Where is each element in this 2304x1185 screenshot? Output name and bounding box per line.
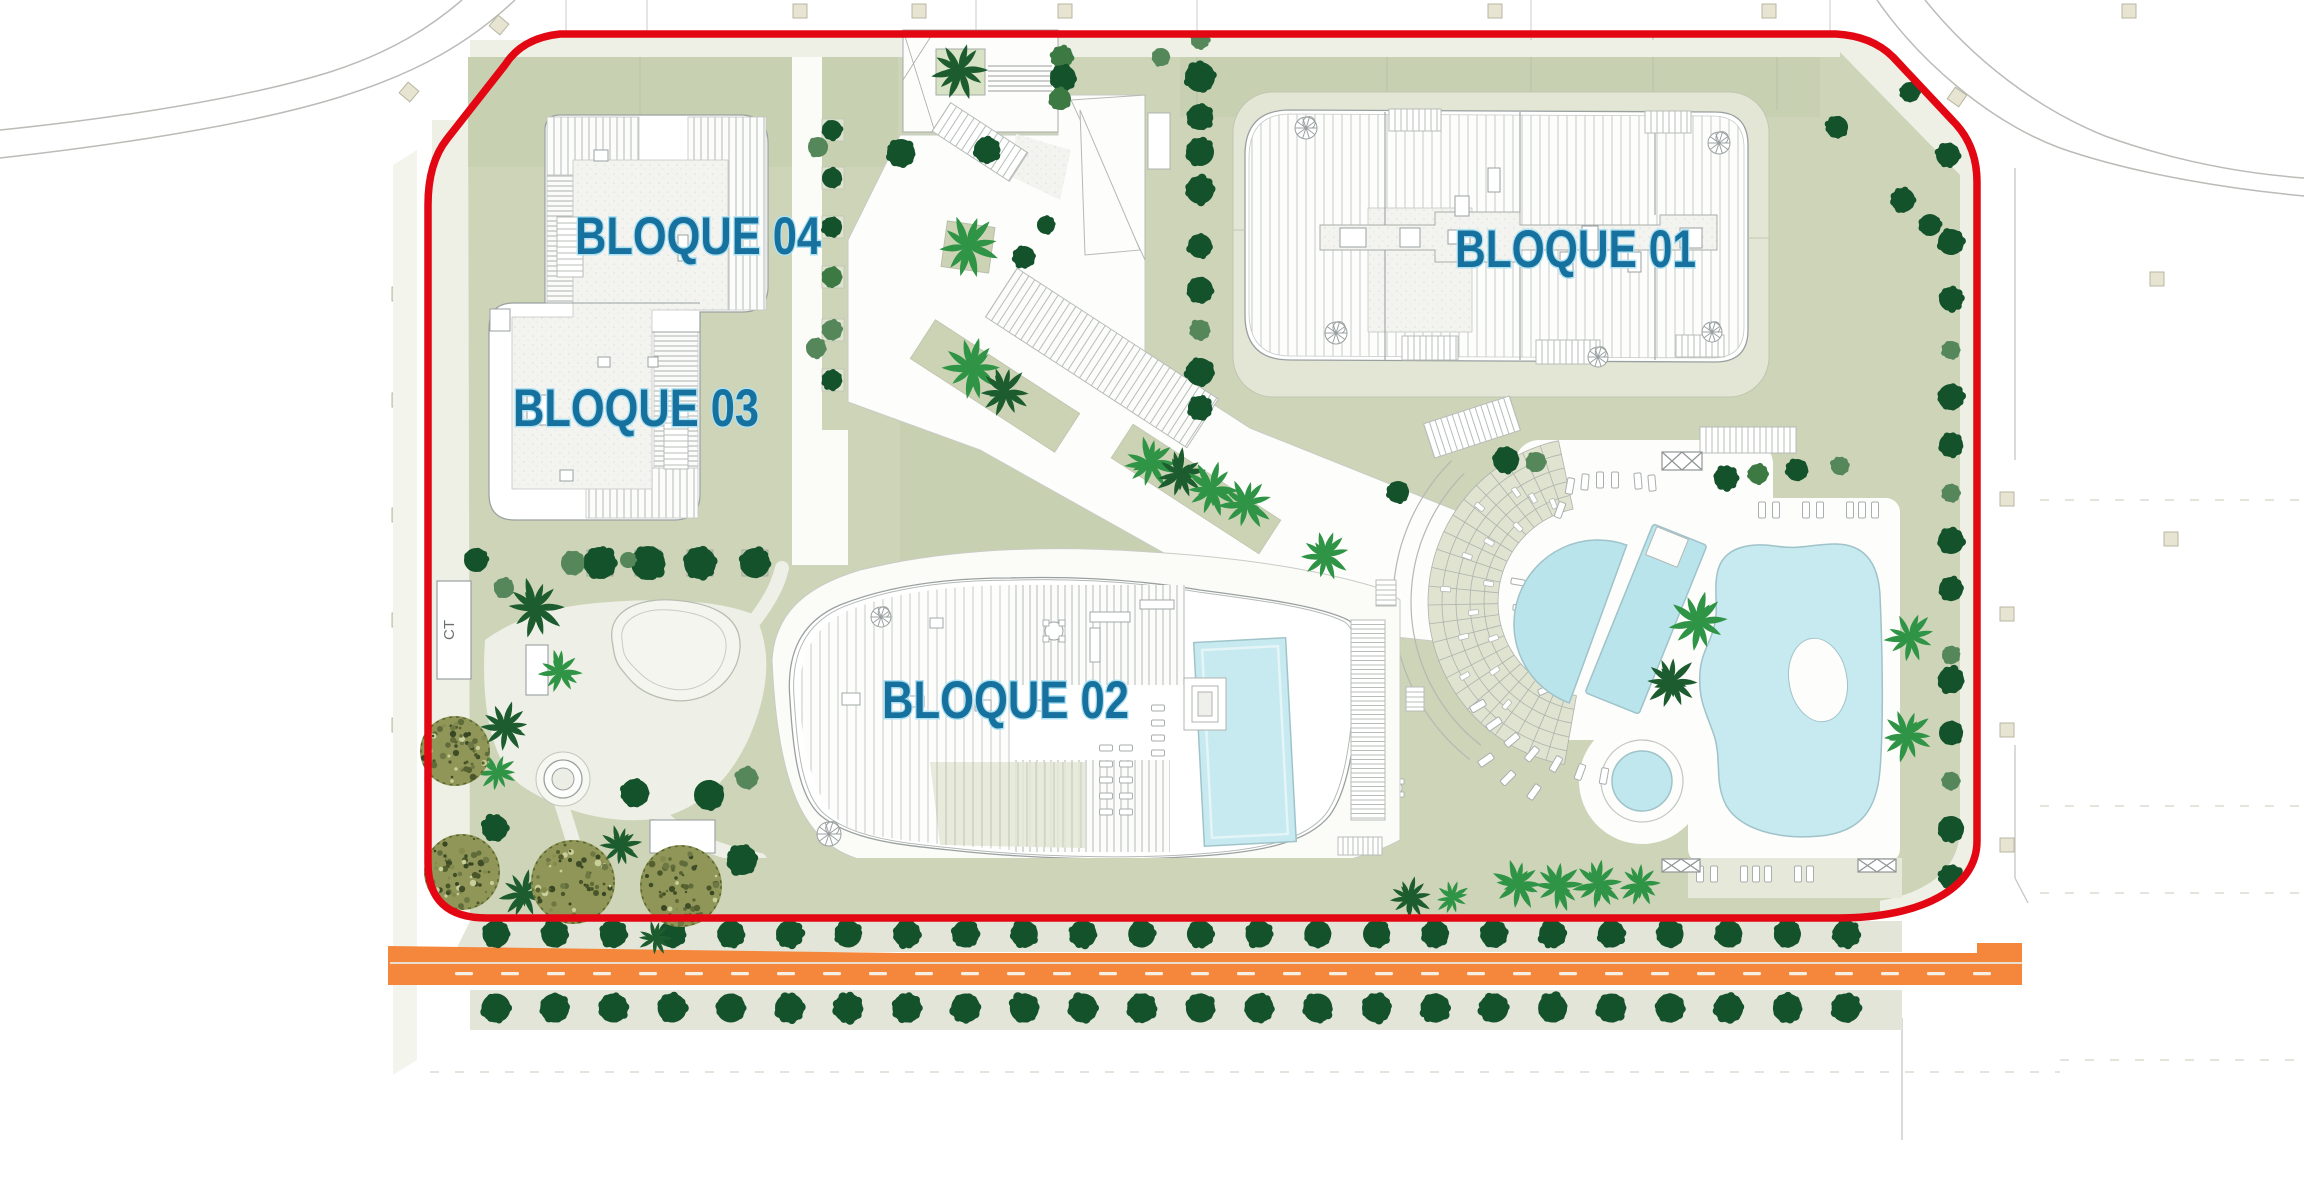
svg-text:BLOQUE 03: BLOQUE 03 (513, 379, 759, 438)
svg-text:BLOQUE 02: BLOQUE 02 (882, 671, 1129, 730)
svg-text:CT: CT (441, 620, 458, 640)
svg-text:BLOQUE 01: BLOQUE 01 (1455, 220, 1696, 279)
svg-text:BLOQUE 04: BLOQUE 04 (575, 207, 821, 266)
